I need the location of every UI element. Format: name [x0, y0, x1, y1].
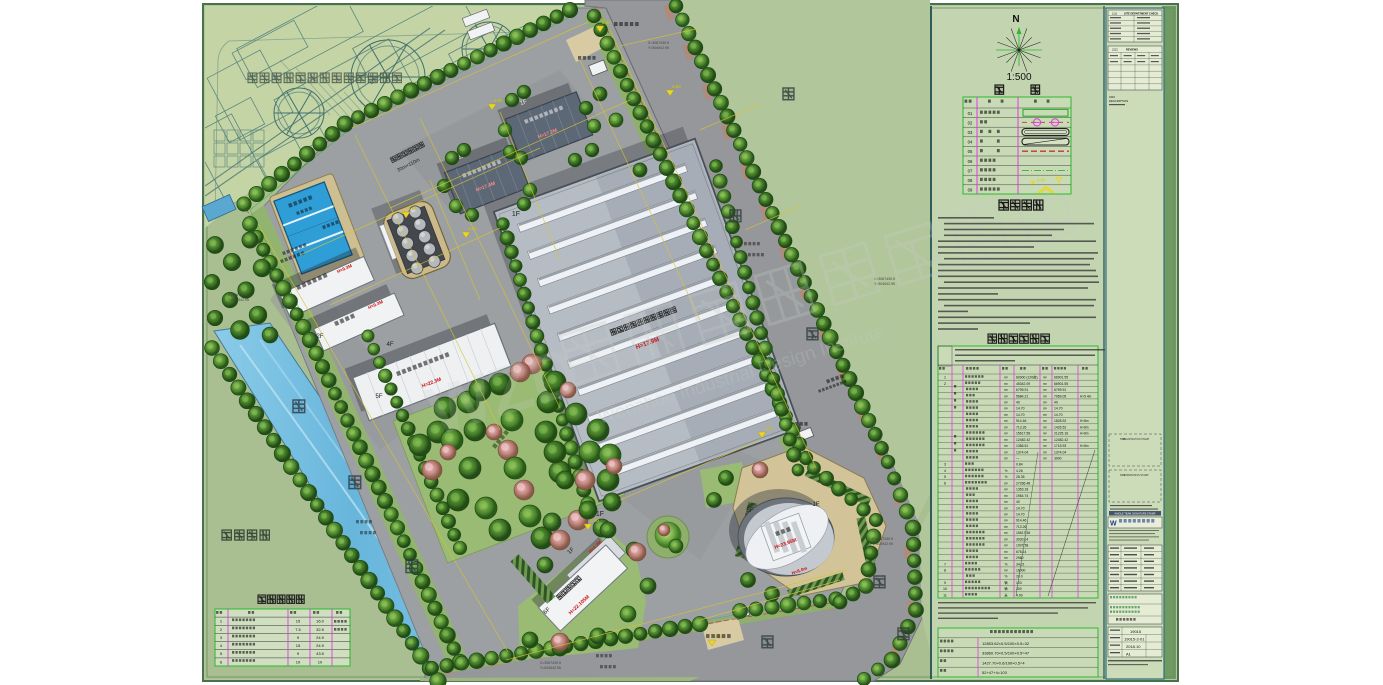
svg-text:H>8m: H>8m — [1080, 425, 1089, 429]
svg-text:43.5: 43.5 — [316, 651, 325, 656]
svg-text:m²: m² — [1004, 444, 1008, 448]
svg-text:4.26: 4.26 — [1016, 469, 1023, 473]
svg-text:66901.55: 66901.55 — [1054, 376, 1068, 380]
svg-text:2: 2 — [944, 382, 946, 386]
svg-text:m²: m² — [1004, 513, 1008, 517]
svg-text:03: 03 — [968, 130, 973, 135]
svg-text:m²: m² — [1043, 413, 1047, 417]
svg-text:40: 40 — [1016, 401, 1020, 405]
svg-text:52+47+4=103: 52+47+4=103 — [982, 670, 1008, 675]
svg-text:34.21: 34.21 — [1016, 562, 1025, 566]
svg-text:2222: 2222 — [1112, 48, 1118, 52]
svg-text:H>8m: H>8m — [1080, 432, 1089, 436]
svg-text:Y=504942.95: Y=504942.95 — [540, 666, 561, 670]
svg-text:12853.62×0.5/100×0.5=32: 12853.62×0.5/100×0.5=32 — [982, 641, 1030, 646]
svg-text:m²: m² — [1043, 425, 1047, 429]
svg-text:24.9: 24.9 — [316, 643, 325, 648]
svg-text:X=3067439.5: X=3067439.5 — [228, 293, 249, 297]
svg-text:m²: m² — [1004, 550, 1008, 554]
svg-text:m²: m² — [1043, 419, 1047, 423]
svg-text:m²: m² — [1004, 488, 1008, 492]
svg-text:m²: m² — [1043, 438, 1047, 442]
svg-text:m²: m² — [1004, 388, 1008, 392]
svg-text:14.70: 14.70 — [1016, 413, 1025, 417]
svg-text:1715.93: 1715.93 — [1054, 444, 1066, 448]
svg-text:1353.18: 1353.18 — [1016, 488, 1028, 492]
svg-text:66901.55: 66901.55 — [1054, 382, 1068, 386]
svg-text:6799.91: 6799.91 — [1054, 388, 1066, 392]
svg-text:08: 08 — [968, 178, 973, 183]
svg-text:WHOLE TEAM SIGNATURE STAMP: WHOLE TEAM SIGNATURE STAMP — [1115, 513, 1156, 516]
svg-text:19015: 19015 — [1130, 629, 1142, 634]
svg-text:3030.14: 3030.14 — [1016, 537, 1028, 541]
svg-text:SUPERVISION STAMP: SUPERVISION STAMP — [1123, 474, 1148, 477]
svg-text:1828.92: 1828.92 — [1054, 419, 1066, 423]
svg-text:1386.51: 1386.51 — [1016, 444, 1028, 448]
svg-text:X=3067439.5: X=3067439.5 — [648, 41, 669, 45]
svg-text:m²: m² — [1004, 450, 1008, 454]
svg-text:m²: m² — [1004, 376, 1008, 380]
svg-text:8: 8 — [944, 569, 946, 573]
svg-text:914.46: 914.46 — [1016, 419, 1026, 423]
svg-text:103: 103 — [1016, 581, 1022, 585]
svg-text:m²: m² — [1004, 419, 1008, 423]
svg-text:m²: m² — [1043, 432, 1047, 436]
svg-text:Y=504942.95: Y=504942.95 — [228, 298, 249, 302]
svg-text:10: 10 — [296, 659, 301, 664]
svg-text:3: 3 — [944, 463, 946, 467]
svg-text:15: 15 — [296, 619, 301, 624]
svg-text:4.90: 4.90 — [408, 206, 417, 211]
svg-text:40: 40 — [1054, 401, 1058, 405]
svg-text:1: 1 — [944, 376, 946, 380]
svg-text:7069.05: 7069.05 — [1054, 394, 1066, 398]
svg-text:14.70: 14.70 — [1016, 506, 1025, 510]
svg-text:4.60: 4.60 — [672, 84, 681, 89]
svg-text:3000: 3000 — [1054, 457, 1062, 461]
svg-text:21225.16: 21225.16 — [1054, 432, 1068, 436]
svg-text:m²: m² — [1004, 481, 1008, 485]
svg-text:m²: m² — [1043, 450, 1047, 454]
svg-text:713.26: 713.26 — [1016, 525, 1026, 529]
svg-text:REVIEWS: REVIEWS — [1126, 48, 1138, 52]
svg-text:%: % — [1005, 575, 1008, 579]
svg-text:1427.70×0.6/100×0.5=4: 1427.70×0.6/100×0.5=4 — [982, 660, 1025, 665]
svg-text:12482.42: 12482.42 — [1054, 438, 1068, 442]
svg-text:m²: m² — [1004, 457, 1008, 461]
svg-text:Y=504942.95: Y=504942.95 — [872, 542, 893, 546]
svg-text:m²: m² — [1043, 382, 1047, 386]
svg-text:10: 10 — [943, 587, 947, 591]
svg-text:60000 (120亩): 60000 (120亩) — [1016, 375, 1038, 380]
svg-text:4.90: 4.90 — [1016, 593, 1023, 597]
svg-text:4.90: 4.90 — [494, 98, 503, 103]
svg-text:5: 5 — [944, 475, 946, 479]
svg-text:7.5: 7.5 — [295, 627, 301, 632]
svg-text:16000: 16000 — [1016, 569, 1026, 573]
svg-text:m²: m² — [1043, 388, 1047, 392]
svg-text:m²: m² — [1004, 407, 1008, 411]
svg-text:m²: m² — [1004, 525, 1008, 529]
svg-text:45342.09: 45342.09 — [1016, 382, 1030, 386]
svg-text:X=3067439.5: X=3067439.5 — [872, 537, 893, 541]
svg-text:04: 04 — [968, 140, 973, 145]
svg-text:1374.04: 1374.04 — [1016, 450, 1028, 454]
svg-text:24.9: 24.9 — [316, 635, 325, 640]
svg-text:Y=504942.95: Y=504942.95 — [648, 46, 669, 50]
svg-text:14.70: 14.70 — [1054, 407, 1063, 411]
svg-text:5F: 5F — [375, 394, 382, 400]
svg-text:1F: 1F — [512, 211, 520, 218]
svg-text:m²: m² — [1004, 506, 1008, 510]
svg-text:m²: m² — [1004, 394, 1008, 398]
svg-text:713.26: 713.26 — [1016, 425, 1026, 429]
svg-text:16.0: 16.0 — [316, 619, 325, 624]
svg-text:1:500: 1:500 — [1006, 72, 1031, 83]
svg-text:15617.58: 15617.58 — [1016, 531, 1030, 535]
svg-text:06: 06 — [968, 159, 973, 164]
svg-text:m²: m² — [1004, 544, 1008, 548]
svg-text:676.14: 676.14 — [1016, 550, 1026, 554]
svg-text:X=3067439.5: X=3067439.5 — [540, 661, 561, 665]
svg-text:4.60: 4.60 — [602, 20, 611, 25]
svg-text:14.70: 14.70 — [1016, 513, 1025, 517]
svg-text:m²: m² — [1004, 494, 1008, 498]
svg-text:11: 11 — [943, 593, 947, 597]
svg-text:%: % — [1005, 562, 1008, 566]
svg-text:4: 4 — [944, 469, 946, 473]
svg-text:19015-2-01: 19015-2-01 — [1124, 637, 1145, 642]
svg-text:N: N — [1012, 14, 1019, 25]
svg-text:5684.21: 5684.21 — [1016, 394, 1028, 398]
svg-text:A1: A1 — [1126, 652, 1132, 657]
svg-text:m²: m² — [1043, 394, 1047, 398]
svg-text:m²: m² — [1043, 457, 1047, 461]
svg-text:12482.42: 12482.42 — [1016, 438, 1030, 442]
svg-text:H>8m: H>8m — [1080, 419, 1089, 423]
svg-text:H>8m: H>8m — [1080, 444, 1089, 448]
svg-text:1111: 1111 — [1112, 12, 1118, 16]
svg-text:m²: m² — [1004, 438, 1008, 442]
svg-text:m²: m² — [1043, 444, 1047, 448]
svg-text:4.90: 4.90 — [468, 226, 477, 231]
svg-text:7: 7 — [944, 562, 946, 566]
svg-text:05: 05 — [968, 149, 973, 154]
svg-text:1F: 1F — [812, 502, 819, 508]
svg-text:m²: m² — [1004, 519, 1008, 523]
svg-text:m²: m² — [1004, 432, 1008, 436]
svg-text:0.84: 0.84 — [1016, 463, 1023, 467]
svg-text:32.5: 32.5 — [316, 627, 325, 632]
svg-text:%: % — [1005, 469, 1008, 473]
svg-text:m²: m² — [1004, 401, 1008, 405]
svg-text:W: W — [1110, 521, 1117, 528]
svg-text:15: 15 — [296, 643, 301, 648]
svg-text:33860.70×0.5/100×0.5=47: 33860.70×0.5/100×0.5=47 — [982, 651, 1030, 656]
svg-text:DESCRIPTION: DESCRIPTION — [1109, 99, 1128, 103]
svg-text:m²: m² — [1004, 569, 1008, 573]
svg-text:6799.91: 6799.91 — [1016, 388, 1028, 392]
svg-text:m²: m² — [1004, 382, 1008, 386]
svg-text:%: % — [1005, 475, 1008, 479]
svg-text:m²: m² — [1004, 531, 1008, 535]
svg-text:14.70: 14.70 — [1016, 407, 1025, 411]
svg-text:07: 07 — [968, 168, 973, 173]
svg-text:5F: 5F — [746, 508, 753, 514]
svg-text:09: 09 — [968, 188, 973, 193]
svg-text:28.35: 28.35 — [1016, 475, 1025, 479]
svg-text:SITE DEPARTMENT CHECK: SITE DEPARTMENT CHECK — [1124, 12, 1158, 16]
svg-text:REGISTRATION STAMP: REGISTRATION STAMP — [1123, 438, 1150, 441]
svg-text:914.46: 914.46 — [1016, 519, 1026, 523]
svg-text:2018.10: 2018.10 — [1126, 644, 1141, 649]
svg-text:02: 02 — [968, 120, 973, 125]
svg-text:6: 6 — [944, 481, 946, 485]
svg-text:10: 10 — [318, 659, 323, 664]
svg-text:9: 9 — [944, 581, 946, 585]
svg-text:m²: m² — [1004, 500, 1008, 504]
svg-text:4F: 4F — [386, 342, 393, 348]
svg-text:15617.58: 15617.58 — [1016, 432, 1030, 436]
svg-text:1374.04: 1374.04 — [1054, 450, 1066, 454]
svg-text:01: 01 — [968, 111, 973, 116]
svg-text:2960: 2960 — [1016, 556, 1024, 560]
svg-text:27266.48: 27266.48 — [1016, 481, 1030, 485]
svg-text:m²: m² — [1004, 537, 1008, 541]
svg-text:H>5.4m: H>5.4m — [1080, 394, 1092, 398]
svg-text:40: 40 — [1016, 500, 1020, 504]
svg-text:1007.58: 1007.58 — [1016, 544, 1028, 548]
svg-text:m²: m² — [1043, 376, 1047, 380]
svg-text:4.90: 4.90 — [764, 426, 773, 431]
svg-text:m²: m² — [1043, 401, 1047, 405]
svg-text:1426.52: 1426.52 — [1054, 425, 1066, 429]
svg-text:m²: m² — [1004, 413, 1008, 417]
svg-text:1964.74: 1964.74 — [1016, 494, 1028, 498]
svg-text:4.90: 4.90 — [590, 518, 599, 523]
svg-text:m²: m² — [1004, 425, 1008, 429]
svg-text:1F: 1F — [596, 511, 604, 518]
svg-text:4.60: 4.60 — [1037, 178, 1046, 183]
svg-text:m²: m² — [1043, 407, 1047, 411]
svg-text:m²: m² — [1004, 556, 1008, 560]
svg-text:14.70: 14.70 — [1054, 413, 1063, 417]
